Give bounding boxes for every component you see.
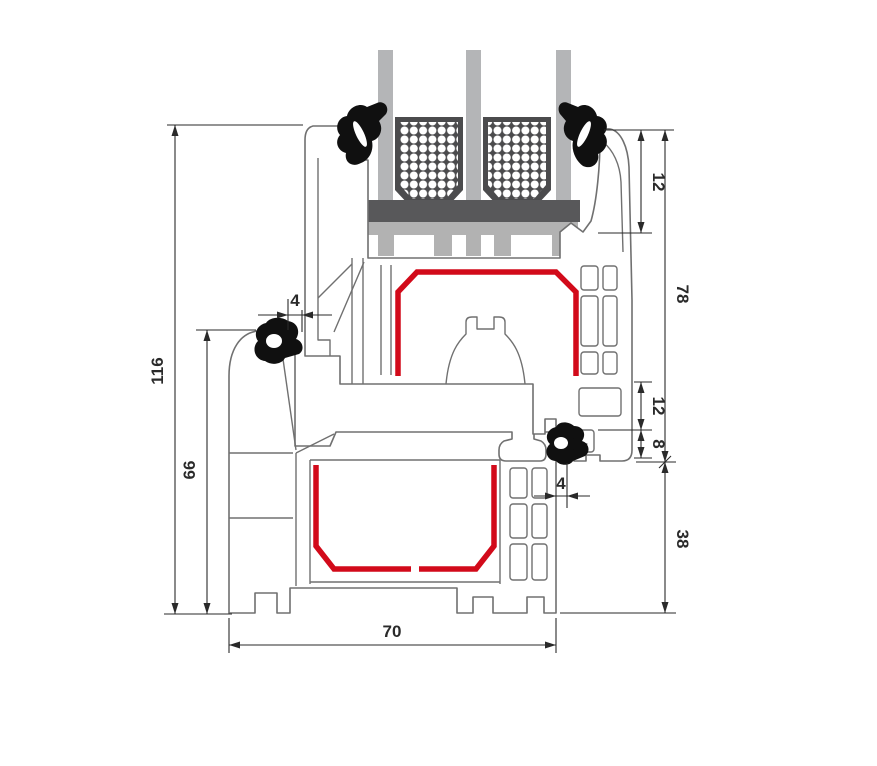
desiccant-dots-right bbox=[488, 122, 546, 199]
gasket-hole-right bbox=[554, 437, 568, 449]
glazing-bridge bbox=[363, 222, 578, 235]
dim-label-66: 66 bbox=[180, 461, 199, 480]
dim-label-8: 8 bbox=[649, 439, 668, 448]
dim-label-116: 116 bbox=[148, 357, 167, 384]
glazing-unit bbox=[363, 50, 580, 256]
dimension-rebate-overlap: 12 bbox=[638, 382, 669, 430]
dim-label-4-left: 4 bbox=[290, 291, 300, 310]
dimension-frame-width: 70 bbox=[229, 622, 556, 649]
dim-label-38: 38 bbox=[673, 530, 692, 549]
glazing-bridge-legs bbox=[378, 235, 568, 256]
dimension-frame-height: 66 bbox=[180, 330, 211, 614]
setting-block bbox=[363, 200, 580, 222]
dim-label-12-mid: 12 bbox=[649, 397, 668, 416]
desiccant-dots-left bbox=[400, 122, 458, 199]
profile-cross-section-drawing: 116 66 70 4 12 bbox=[0, 0, 877, 766]
dimension-total-height: 116 bbox=[148, 125, 179, 614]
gasket-hole-left bbox=[266, 334, 282, 348]
dim-label-70: 70 bbox=[383, 622, 402, 641]
dim-label-4-right: 4 bbox=[556, 474, 566, 493]
dimension-frame-lower-height: 38 bbox=[659, 456, 692, 613]
dim-label-78: 78 bbox=[673, 285, 692, 304]
glass-pane-middle bbox=[466, 50, 481, 205]
technical-drawing-canvas: 116 66 70 4 12 bbox=[0, 0, 877, 766]
dimension-glazing-depth: 12 bbox=[638, 130, 669, 233]
